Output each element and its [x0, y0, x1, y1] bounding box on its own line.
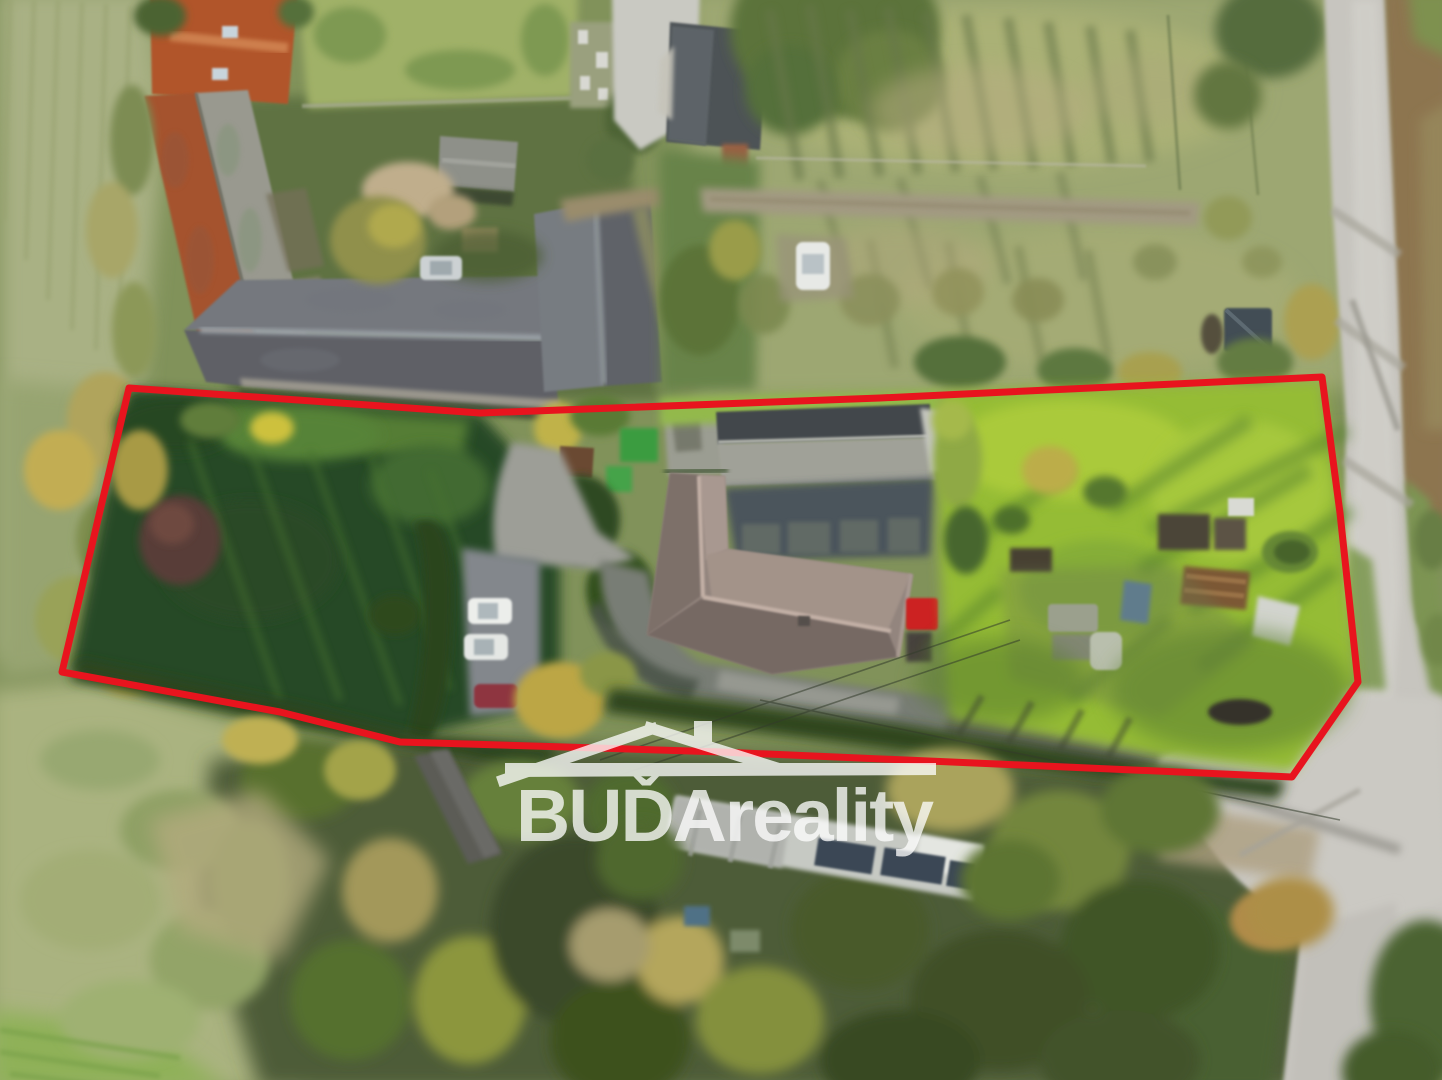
svg-text:BUĎAreality: BUĎAreality — [516, 774, 934, 857]
